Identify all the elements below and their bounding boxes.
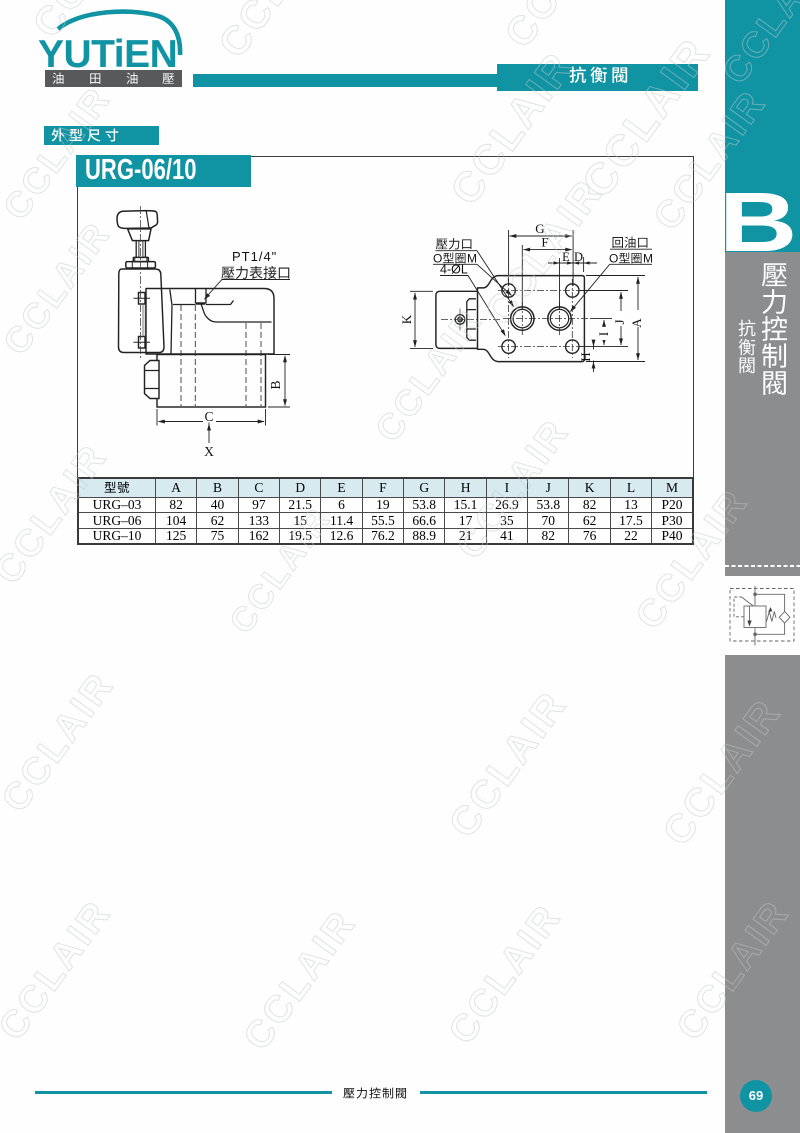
svg-text:O: O xyxy=(609,252,618,266)
svg-text:M: M xyxy=(467,252,477,266)
svg-text:PT1/4": PT1/4" xyxy=(232,249,277,264)
svg-text:M: M xyxy=(643,252,653,266)
svg-text:H: H xyxy=(578,352,593,361)
svg-text:J: J xyxy=(612,319,627,324)
svg-text:D: D xyxy=(574,250,583,264)
svg-text:C: C xyxy=(204,409,213,424)
svg-text:X: X xyxy=(204,444,214,459)
svg-text:I: I xyxy=(596,332,611,336)
svg-text:K: K xyxy=(399,314,414,324)
svg-text:B: B xyxy=(268,380,283,389)
svg-text:4-ØL: 4-ØL xyxy=(440,263,468,277)
svg-text:A: A xyxy=(629,318,644,328)
